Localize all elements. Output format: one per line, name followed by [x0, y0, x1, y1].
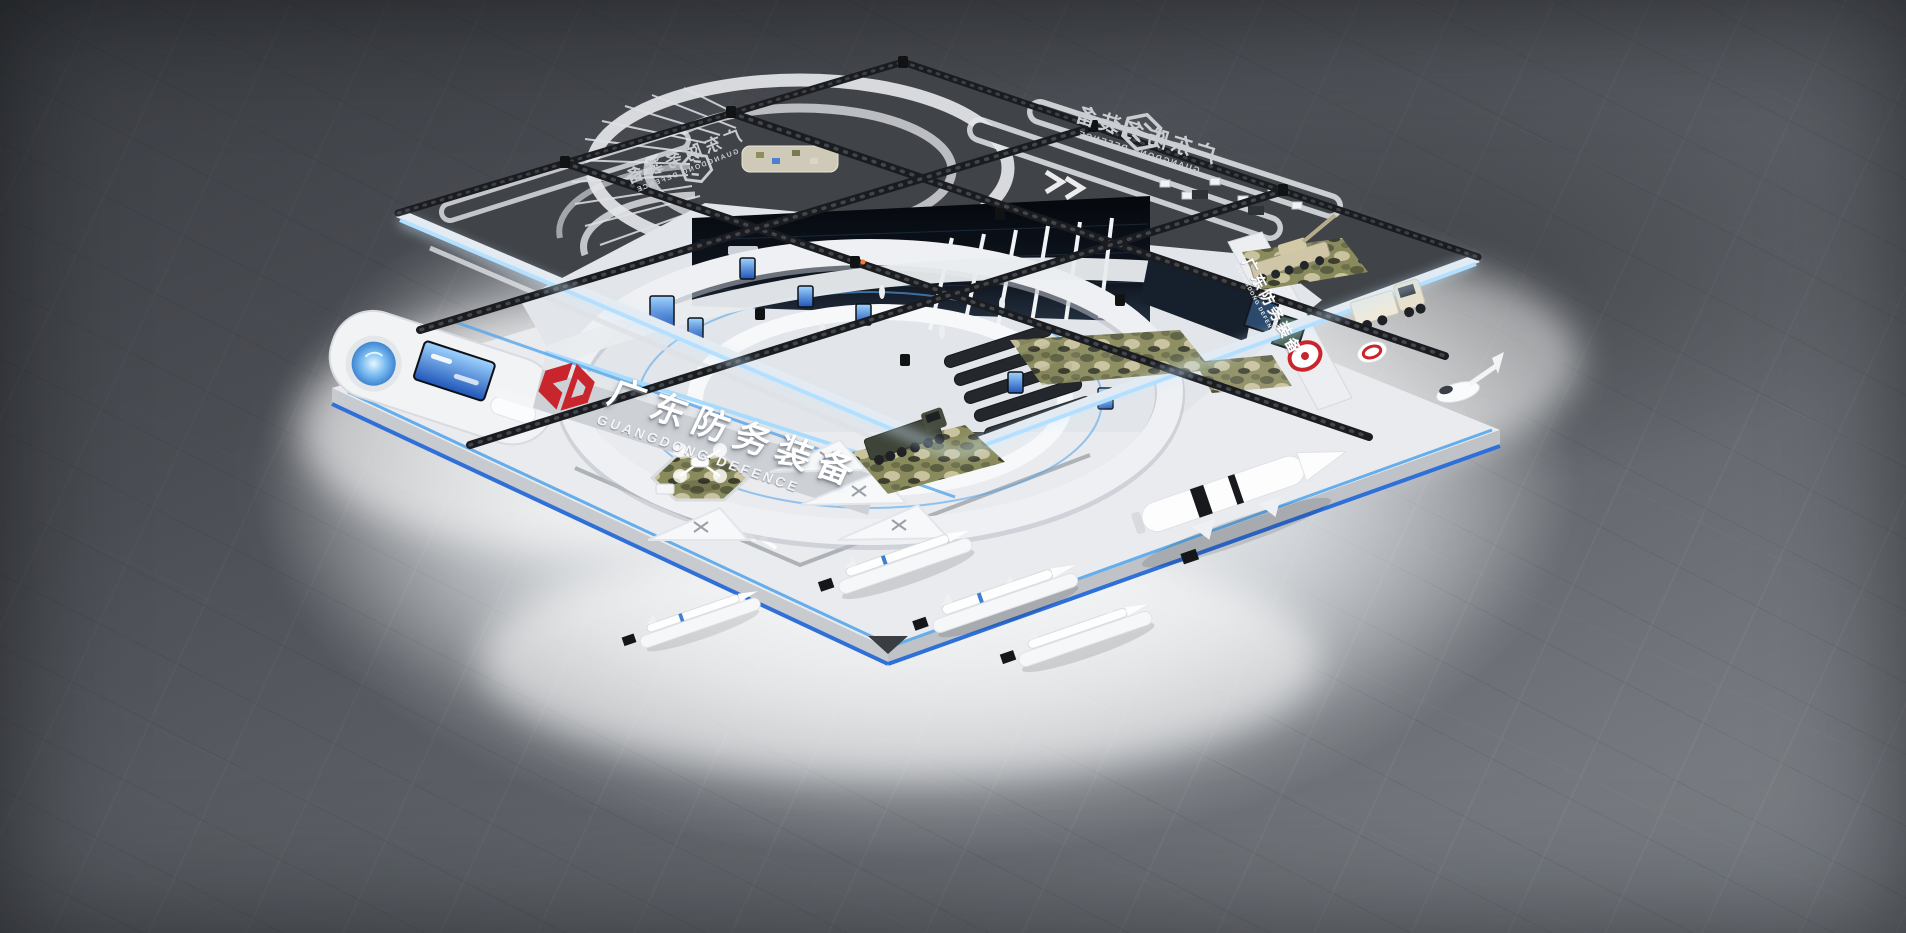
terrain-map-table — [742, 146, 838, 172]
drone-console — [656, 484, 674, 494]
exhibition-booth-render: 广东防务装备 GUANGDONG DEFENCE 广东防务装备 GUANGDON… — [0, 0, 1906, 933]
booth-scene — [0, 0, 1906, 933]
spotlight-glow-dot — [861, 260, 866, 265]
